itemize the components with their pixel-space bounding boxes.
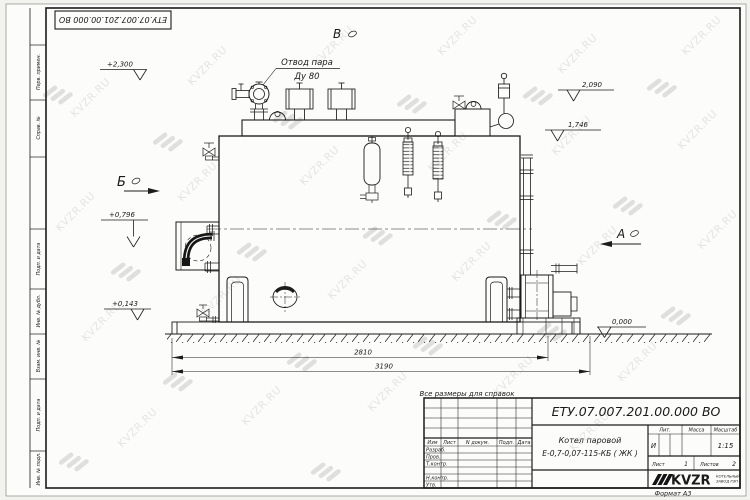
elevation-value: 0,000 bbox=[612, 318, 633, 326]
corner-stamp-designation: ЕТУ.07.007.201.00.000 ВО bbox=[59, 15, 167, 24]
tb-scale-label: Масштаб bbox=[714, 428, 738, 434]
tb-sheets-value: 2 bbox=[732, 461, 736, 468]
sheet-edge bbox=[6, 4, 746, 496]
margin-label-vzam-inv: Взам. инв. № bbox=[36, 340, 42, 373]
margin-label-inv-dubl: Инв. № дубл. bbox=[36, 295, 42, 328]
view-b-letter: Б bbox=[117, 175, 126, 190]
tb-col-podp: Подп. bbox=[499, 440, 514, 446]
steam-outlet-label-line2: Ду 80 bbox=[293, 72, 319, 82]
tb-scale-value: 1:15 bbox=[718, 442, 734, 450]
margin-label-podp-data-1: Подп. и дата bbox=[36, 243, 42, 276]
tb-sheet-label: Лист bbox=[651, 462, 666, 468]
elevation-value: +0,796 bbox=[109, 211, 135, 219]
tb-row-nkontr: Н.контр. bbox=[426, 476, 448, 482]
tb-row-tkontr: Т.контр. bbox=[426, 462, 448, 468]
reference-note: Все размеры для справок bbox=[420, 390, 516, 398]
elevation-value: 1,746 bbox=[568, 121, 589, 129]
tb-product-name-1: Котел паровой bbox=[559, 436, 622, 445]
drawing-sheet-scan: KVZR.RU KVZR.RU KVZR.RU KVZR.RU KVZR.RU … bbox=[0, 0, 750, 500]
tb-row-utv: Утв. bbox=[426, 483, 437, 489]
elevation-value: +2,300 bbox=[107, 61, 133, 69]
tb-col-dokum: N докум. bbox=[466, 440, 489, 446]
tb-col-data: Дата bbox=[517, 440, 531, 446]
steam-outlet-label-line1: Отвод пара bbox=[281, 58, 333, 68]
margin-label-podp-data-2: Подп. и дата bbox=[36, 399, 42, 432]
tb-row-prov: Пров. bbox=[426, 455, 441, 461]
dimension-value: 2810 bbox=[354, 349, 372, 357]
ground-line bbox=[165, 334, 712, 343]
view-a-letter: А bbox=[616, 227, 625, 241]
tb-product-name-2: Е-0,7-0,07-115-КБ ( ЖК ) bbox=[542, 449, 637, 458]
company-logo-text: KVZR bbox=[671, 474, 711, 489]
company-sub1: КОТЕЛЬНЫЙ bbox=[716, 474, 740, 479]
tb-sheet-value: 1 bbox=[684, 461, 688, 468]
elevation-value: +0,143 bbox=[112, 300, 138, 308]
format-label: Формат А3 bbox=[654, 490, 691, 498]
tb-sheets-label: Листов bbox=[699, 462, 719, 468]
view-v-letter: В bbox=[333, 27, 341, 41]
elevation-value: 2,090 bbox=[582, 81, 603, 89]
boiler-drawing-svg: KVZR.RU KVZR.RU KVZR.RU KVZR.RU KVZR.RU … bbox=[0, 0, 750, 500]
tb-col-list: Лист bbox=[442, 440, 457, 446]
margin-label-inv-podl: Инв. № подл. bbox=[36, 452, 42, 485]
margin-label-perv-primen: Перв. примен. bbox=[36, 54, 42, 90]
tb-col-izm: Изм bbox=[427, 440, 437, 446]
tb-massa-label: Масса bbox=[689, 428, 705, 434]
dimension-value: 3190 bbox=[375, 363, 393, 371]
tb-designation: ЕТУ.07.007.201.00.000 ВО bbox=[552, 404, 721, 419]
margin-label-sprav-no: Справ. № bbox=[36, 116, 42, 139]
tb-row-razrab: Разраб. bbox=[426, 448, 446, 454]
company-sub2: ЗАВОД РЭП bbox=[716, 480, 738, 484]
tb-lit-label: Лит. bbox=[658, 428, 671, 434]
tb-lit-value: И bbox=[651, 442, 657, 450]
